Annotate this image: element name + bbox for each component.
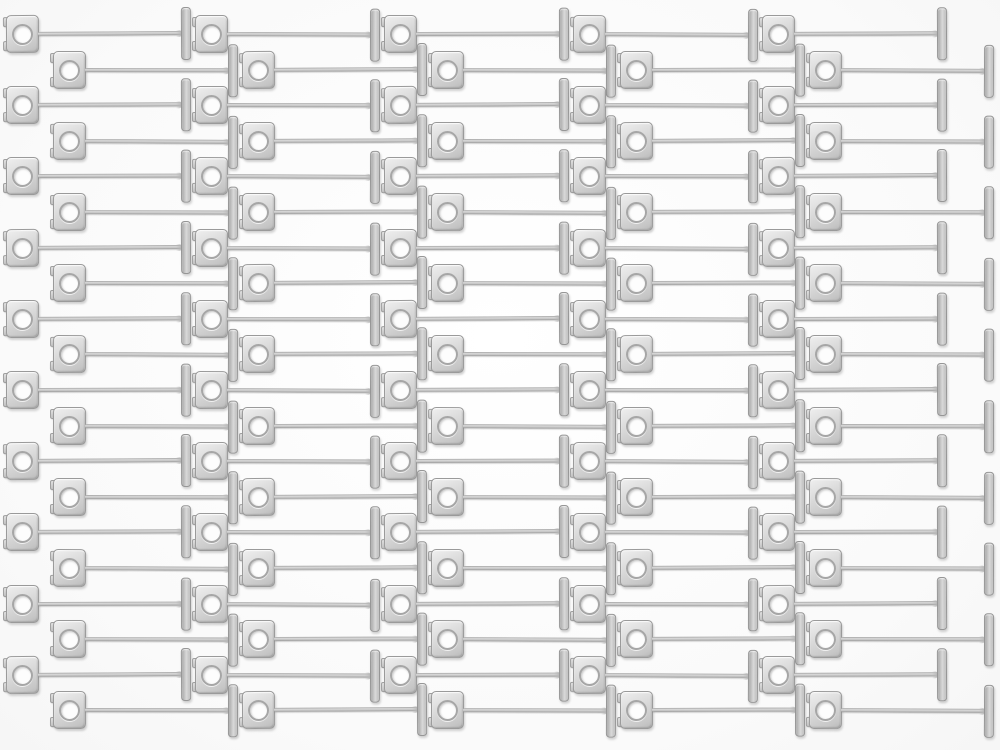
- plate-hole: [200, 664, 221, 685]
- pin-shaft: [273, 636, 417, 641]
- pin-shaft: [840, 423, 984, 428]
- plate-hole: [247, 130, 268, 151]
- pin-shaft: [37, 529, 181, 534]
- plate-hole: [200, 308, 221, 329]
- pin-shaft: [273, 707, 417, 712]
- plate-hole: [200, 23, 221, 44]
- plate-hole: [11, 308, 32, 329]
- plate-hole: [578, 664, 599, 685]
- pin-shaft: [84, 566, 228, 571]
- pin-shaft: [84, 281, 228, 286]
- pin-shaft: [37, 387, 181, 392]
- plate-hole: [58, 344, 79, 365]
- pin-shaft: [651, 422, 795, 427]
- pin-shaft: [793, 672, 937, 677]
- plate-hole: [11, 451, 32, 472]
- plate-hole: [814, 629, 835, 650]
- pin-shaft: [415, 458, 559, 463]
- plate-hole: [247, 629, 268, 650]
- pin-shaft: [651, 565, 795, 570]
- pin-shaft: [793, 173, 937, 178]
- plate-hole: [767, 451, 788, 472]
- plate-hole: [625, 273, 646, 294]
- plate-hole: [578, 95, 599, 116]
- pin-shaft: [462, 210, 606, 215]
- t-bar: [227, 684, 237, 737]
- t-bar: [416, 683, 426, 736]
- plate-hole: [814, 700, 835, 721]
- pin-shaft: [840, 67, 984, 72]
- pin-shaft: [651, 351, 795, 356]
- t-bar: [983, 613, 993, 666]
- pin-shaft: [226, 672, 370, 677]
- plate-hole: [11, 664, 32, 685]
- pin-shaft: [415, 102, 559, 107]
- pin-shaft: [604, 32, 748, 37]
- pin-shaft: [273, 209, 417, 214]
- pin-shaft: [84, 708, 228, 713]
- plate-hole: [200, 95, 221, 116]
- pin-shaft: [651, 67, 795, 72]
- pin-shaft: [273, 493, 417, 498]
- pin-shaft: [604, 245, 748, 250]
- pin-shaft: [651, 636, 795, 641]
- pin-shaft: [462, 637, 606, 642]
- plate-hole: [578, 308, 599, 329]
- plate-hole: [578, 166, 599, 187]
- pin-shaft: [226, 388, 370, 393]
- plate-hole: [578, 593, 599, 614]
- plate-hole: [625, 700, 646, 721]
- plate-hole: [436, 700, 457, 721]
- plate-hole: [814, 273, 835, 294]
- fastener-clip: [237, 682, 426, 737]
- pin-shaft: [415, 173, 559, 178]
- pin-shaft: [462, 67, 606, 72]
- pin-shaft: [604, 103, 748, 108]
- pin-shaft: [37, 458, 181, 463]
- t-bar: [983, 186, 993, 239]
- t-bar: [983, 258, 993, 311]
- pin-shaft: [415, 672, 559, 677]
- pin-shaft: [604, 530, 748, 535]
- plate-hole: [58, 700, 79, 721]
- plate-hole: [58, 273, 79, 294]
- plate-hole: [814, 557, 835, 578]
- plate-hole: [247, 273, 268, 294]
- pin-shaft: [84, 423, 228, 428]
- plate-hole: [625, 344, 646, 365]
- t-bar: [983, 399, 993, 452]
- pin-shaft: [793, 102, 937, 107]
- plate-hole: [578, 237, 599, 258]
- pin-shaft: [840, 352, 984, 357]
- pin-shaft: [37, 316, 181, 321]
- pin-shaft: [793, 600, 937, 605]
- plate-hole: [814, 201, 835, 222]
- pin-shaft: [462, 494, 606, 499]
- pin-shaft: [37, 174, 181, 179]
- pin-shaft: [273, 66, 417, 71]
- pin-shaft: [840, 494, 984, 499]
- pin-shaft: [84, 210, 228, 215]
- plate-hole: [58, 629, 79, 650]
- fastener-photo: [0, 0, 1000, 750]
- pin-shaft: [415, 529, 559, 534]
- pin-shaft: [84, 67, 228, 72]
- pin-shaft: [604, 672, 748, 677]
- plate-hole: [247, 700, 268, 721]
- pin-shaft: [840, 637, 984, 642]
- plate-hole: [200, 379, 221, 400]
- pin-shaft: [462, 566, 606, 571]
- fastener-clip: [426, 683, 615, 738]
- plate-hole: [436, 629, 457, 650]
- t-bar: [983, 115, 993, 168]
- pin-shaft: [415, 315, 559, 320]
- pin-shaft: [226, 32, 370, 37]
- plate-hole: [58, 557, 79, 578]
- pin-shaft: [651, 280, 795, 285]
- plate-hole: [767, 23, 788, 44]
- pin-shaft: [273, 280, 417, 285]
- pin-shaft: [226, 530, 370, 535]
- fastener-clip: [804, 683, 993, 738]
- pin-shaft: [462, 708, 606, 713]
- pin-shaft: [840, 708, 984, 713]
- t-bar: [983, 542, 993, 595]
- plate-hole: [247, 415, 268, 436]
- t-bar: [794, 683, 804, 736]
- plate-hole: [11, 23, 32, 44]
- plate-hole: [247, 59, 268, 80]
- plate-hole: [578, 451, 599, 472]
- plate-hole: [200, 166, 221, 187]
- pin-shaft: [84, 494, 228, 499]
- plate-hole: [625, 415, 646, 436]
- t-bar: [983, 328, 993, 381]
- pin-shaft: [226, 601, 370, 606]
- pin-shaft: [226, 245, 370, 250]
- pin-shaft: [226, 316, 370, 321]
- pin-shaft: [84, 352, 228, 357]
- pin-shaft: [840, 281, 984, 286]
- pin-shaft: [840, 566, 984, 571]
- pin-shaft: [604, 459, 748, 464]
- plate-hole: [58, 201, 79, 222]
- plate-hole: [247, 344, 268, 365]
- plate-hole: [625, 629, 646, 650]
- pin-shaft: [462, 352, 606, 357]
- pin-shaft: [84, 637, 228, 642]
- plate-hole: [247, 557, 268, 578]
- pin-shaft: [840, 210, 984, 215]
- plate-hole: [436, 273, 457, 294]
- pin-shaft: [415, 245, 559, 250]
- plate-hole: [200, 522, 221, 543]
- plate-hole: [436, 344, 457, 365]
- pin-shaft: [651, 209, 795, 214]
- pin-shaft: [226, 459, 370, 464]
- plate-hole: [578, 522, 599, 543]
- pin-shaft: [415, 600, 559, 605]
- pin-shaft: [415, 31, 559, 36]
- pin-shaft: [793, 244, 937, 249]
- pin-shaft: [793, 31, 937, 36]
- t-bar: [605, 684, 615, 737]
- pin-shaft: [37, 102, 181, 107]
- pin-shaft: [604, 601, 748, 606]
- plate-hole: [11, 522, 32, 543]
- t-bar: [983, 685, 993, 738]
- plate-hole: [11, 237, 32, 258]
- pin-shaft: [793, 458, 937, 463]
- plate-hole: [625, 59, 646, 80]
- pin-shaft: [273, 423, 417, 428]
- pin-shaft: [462, 138, 606, 143]
- t-bar: [983, 44, 993, 97]
- pin-shaft: [840, 138, 984, 143]
- pin-shaft: [37, 31, 181, 36]
- pin-shaft: [651, 137, 795, 142]
- plate-hole: [11, 593, 32, 614]
- pin-shaft: [226, 174, 370, 179]
- plate-hole: [200, 451, 221, 472]
- pin-shaft: [604, 316, 748, 321]
- pin-shaft: [37, 601, 181, 606]
- pin-shaft: [415, 387, 559, 392]
- pin-shaft: [273, 138, 417, 143]
- t-bar: [983, 471, 993, 524]
- pin-shaft: [604, 174, 748, 179]
- pin-shaft: [462, 281, 606, 286]
- plate-hole: [247, 201, 268, 222]
- pin-shaft: [273, 351, 417, 356]
- plate-hole: [625, 557, 646, 578]
- fastener-clip: [615, 683, 804, 737]
- pin-shaft: [37, 244, 181, 249]
- pin-shaft: [84, 138, 228, 143]
- plate-hole: [11, 95, 32, 116]
- plate-hole: [200, 593, 221, 614]
- plate-hole: [436, 201, 457, 222]
- pin-shaft: [651, 494, 795, 499]
- pin-shaft: [37, 671, 181, 676]
- plate-hole: [200, 237, 221, 258]
- pin-shaft: [273, 565, 417, 570]
- plate-hole: [11, 379, 32, 400]
- plate-hole: [389, 379, 410, 400]
- pin-shaft: [462, 423, 606, 428]
- pin-shaft: [604, 388, 748, 393]
- plate-hole: [625, 201, 646, 222]
- pin-shaft: [226, 103, 370, 108]
- fastener-clip: [48, 683, 237, 737]
- plate-hole: [578, 23, 599, 44]
- plate-hole: [11, 166, 32, 187]
- plate-hole: [578, 379, 599, 400]
- pin-shaft: [793, 387, 937, 392]
- pin-shaft: [793, 530, 937, 535]
- plate-hole: [436, 557, 457, 578]
- pin-shaft: [793, 316, 937, 321]
- pin-shaft: [651, 708, 795, 713]
